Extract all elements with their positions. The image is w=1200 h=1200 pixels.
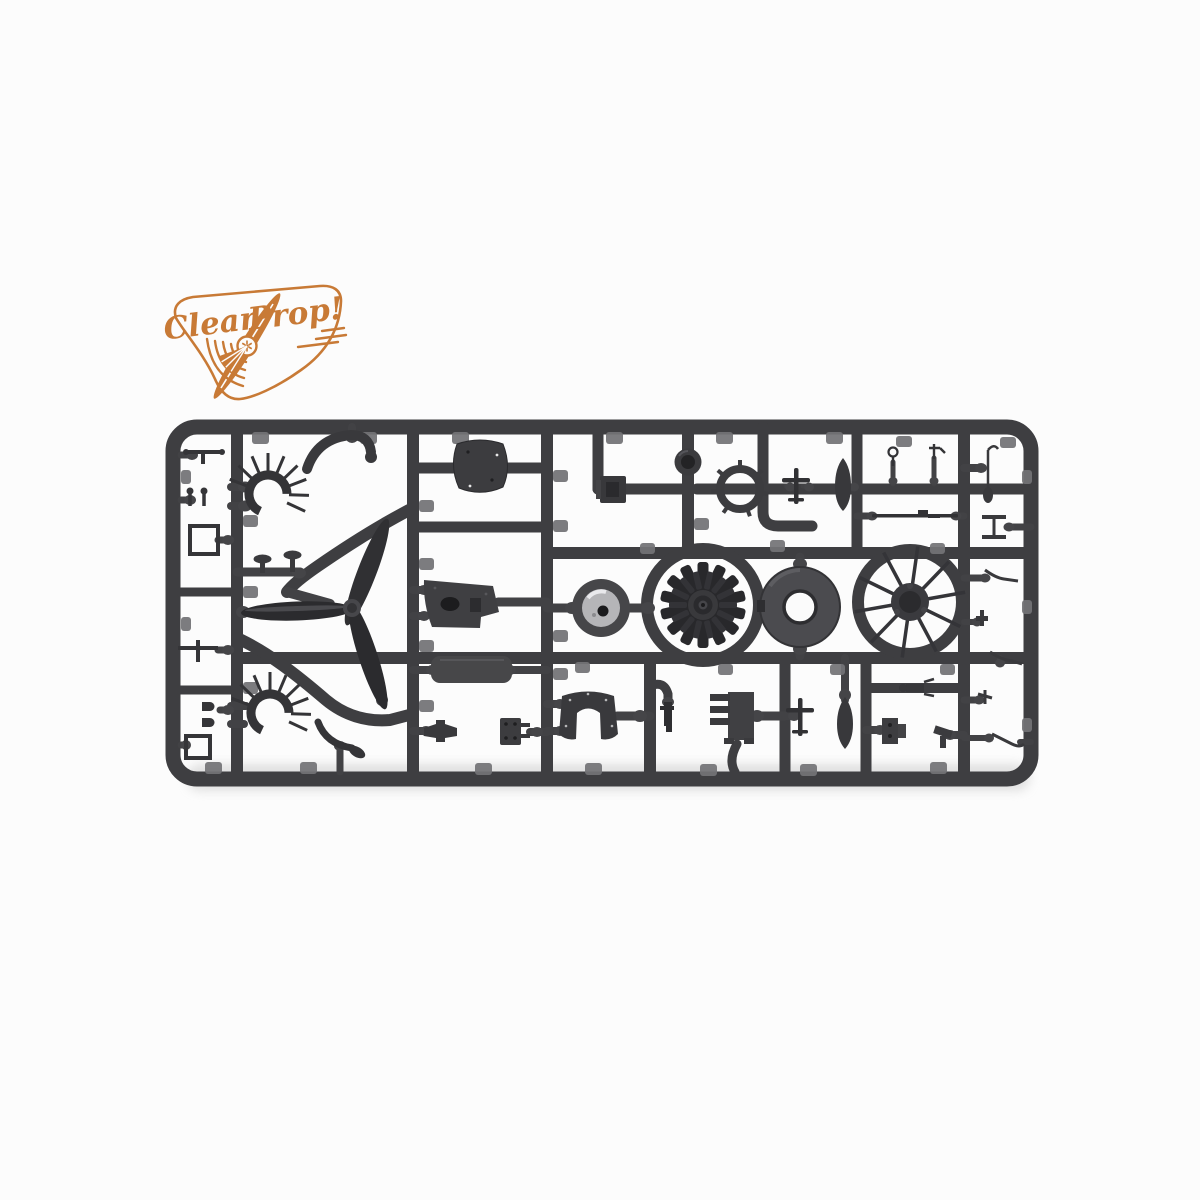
sprue-photo-svg: Clear Prop!: [0, 0, 1200, 1200]
cockpit-floor: [431, 656, 512, 683]
product-photo: Clear Prop!: [0, 0, 1200, 1200]
runner-curve-below-comb: [732, 744, 737, 772]
wheel-hub: [675, 449, 702, 476]
cowling-front-plate: [572, 579, 630, 637]
firewall-bulkhead: [453, 440, 507, 492]
cockpit-bracket: [596, 476, 626, 503]
